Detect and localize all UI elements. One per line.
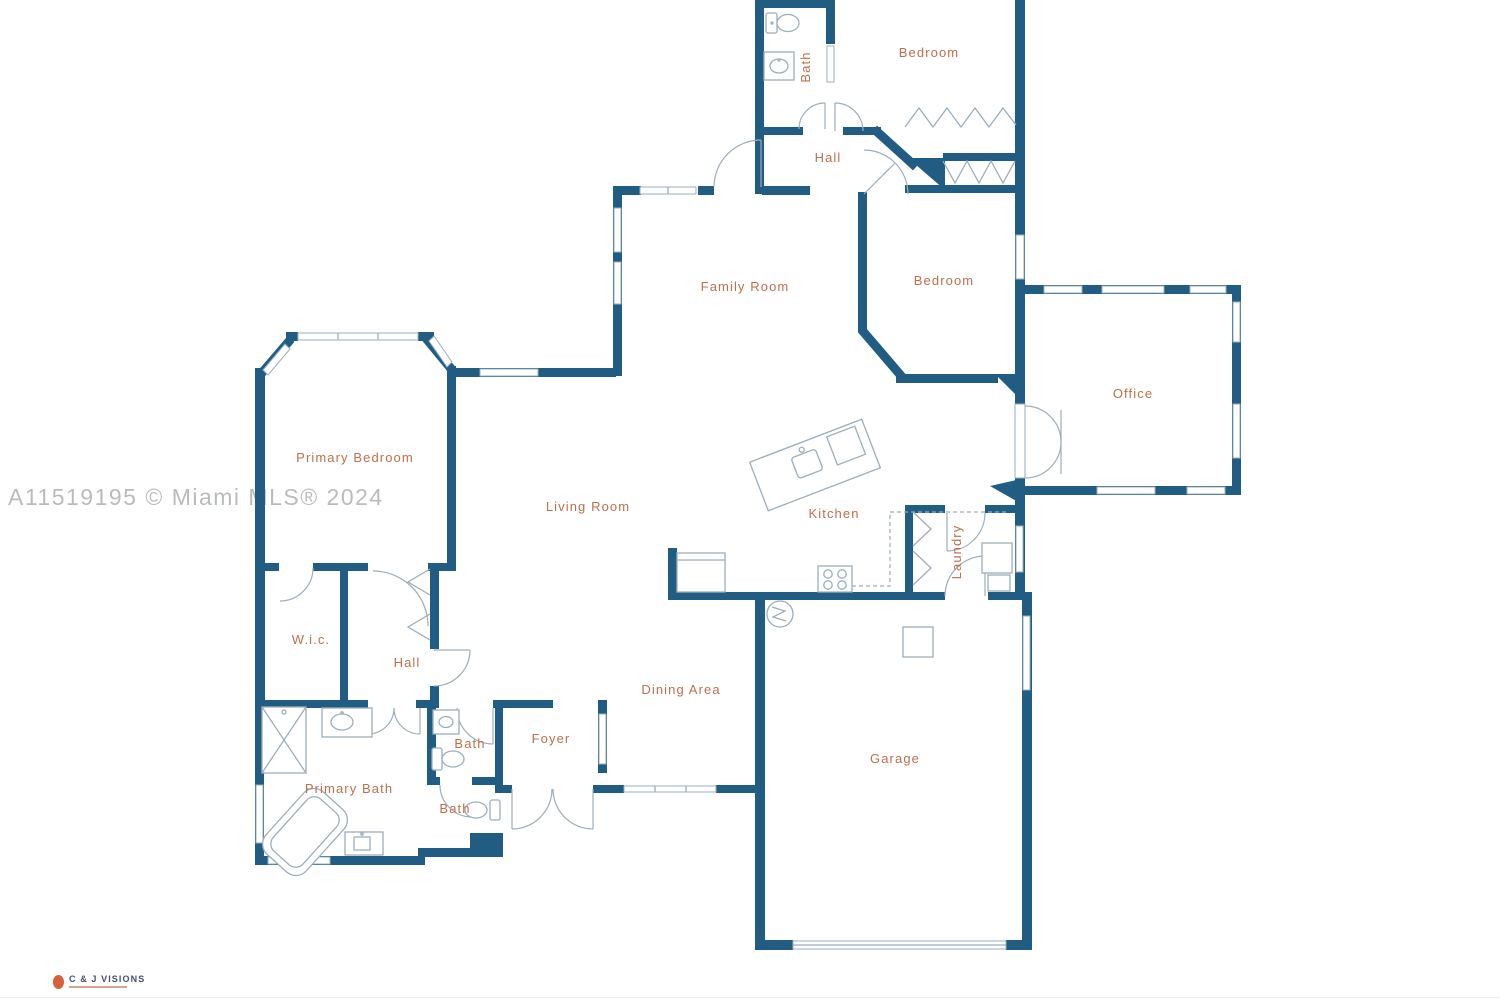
room-label-foyer: Foyer: [532, 731, 571, 746]
room-label-family-room: Family Room: [701, 279, 790, 294]
floorplan-image: A11519195 © Miami MLS® 2024: [0, 0, 1500, 999]
room-label-bath-mid: Bath: [454, 736, 485, 751]
toilet-top-bath: [766, 13, 799, 33]
room-label-living-room: Living Room: [546, 499, 630, 514]
kitchen-island: [750, 419, 881, 511]
logo-name: C & J VISIONS: [69, 974, 145, 984]
room-label-laundry: Laundry: [949, 525, 964, 580]
room-label-bedroom-mid: Bedroom: [914, 273, 974, 288]
vanity-primary-bath-2: [345, 832, 383, 855]
image-bottom-edge: [0, 997, 1500, 998]
room-label-hall-top: Hall: [815, 150, 842, 165]
shower: [262, 707, 306, 773]
logo-tagline: [69, 986, 127, 988]
walls: [255, 0, 1241, 950]
room-label-bath-top: Bath: [798, 51, 813, 82]
photographer-logo: C & J VISIONS: [53, 974, 145, 989]
vanity-primary-bath: [322, 708, 372, 737]
bathtub: [257, 783, 353, 882]
ac-unit: [903, 627, 933, 657]
cooktop: [818, 566, 852, 592]
garage-door: [793, 941, 1006, 949]
vanity-mid-bath: [433, 710, 459, 734]
room-label-primary-bedroom: Primary Bedroom: [296, 450, 414, 465]
logo-mark-icon: [53, 975, 64, 989]
room-label-kitchen: Kitchen: [808, 506, 859, 521]
vanity-top-bath: [764, 52, 794, 80]
room-label-bedroom-top: Bedroom: [899, 45, 959, 60]
room-label-garage: Garage: [870, 751, 920, 766]
water-heater-symbol: [767, 601, 793, 627]
room-label-wic: W.i.c.: [292, 632, 330, 647]
washer-dryer: [982, 543, 1012, 591]
room-label-dining-area: Dining Area: [641, 682, 720, 697]
room-label-primary-bath: Primary Bath: [305, 781, 393, 796]
refrigerator-counter: [677, 553, 725, 592]
toilet-mid-bath: [432, 748, 464, 770]
room-label-office: Office: [1113, 386, 1153, 401]
floor-plan-svg: Bath Bedroom Hall Family Room Bedroom Of…: [0, 0, 1500, 999]
room-label-bath-lower: Bath: [439, 801, 470, 816]
room-label-hall-lower: Hall: [394, 655, 421, 670]
doors: [280, 103, 1061, 829]
